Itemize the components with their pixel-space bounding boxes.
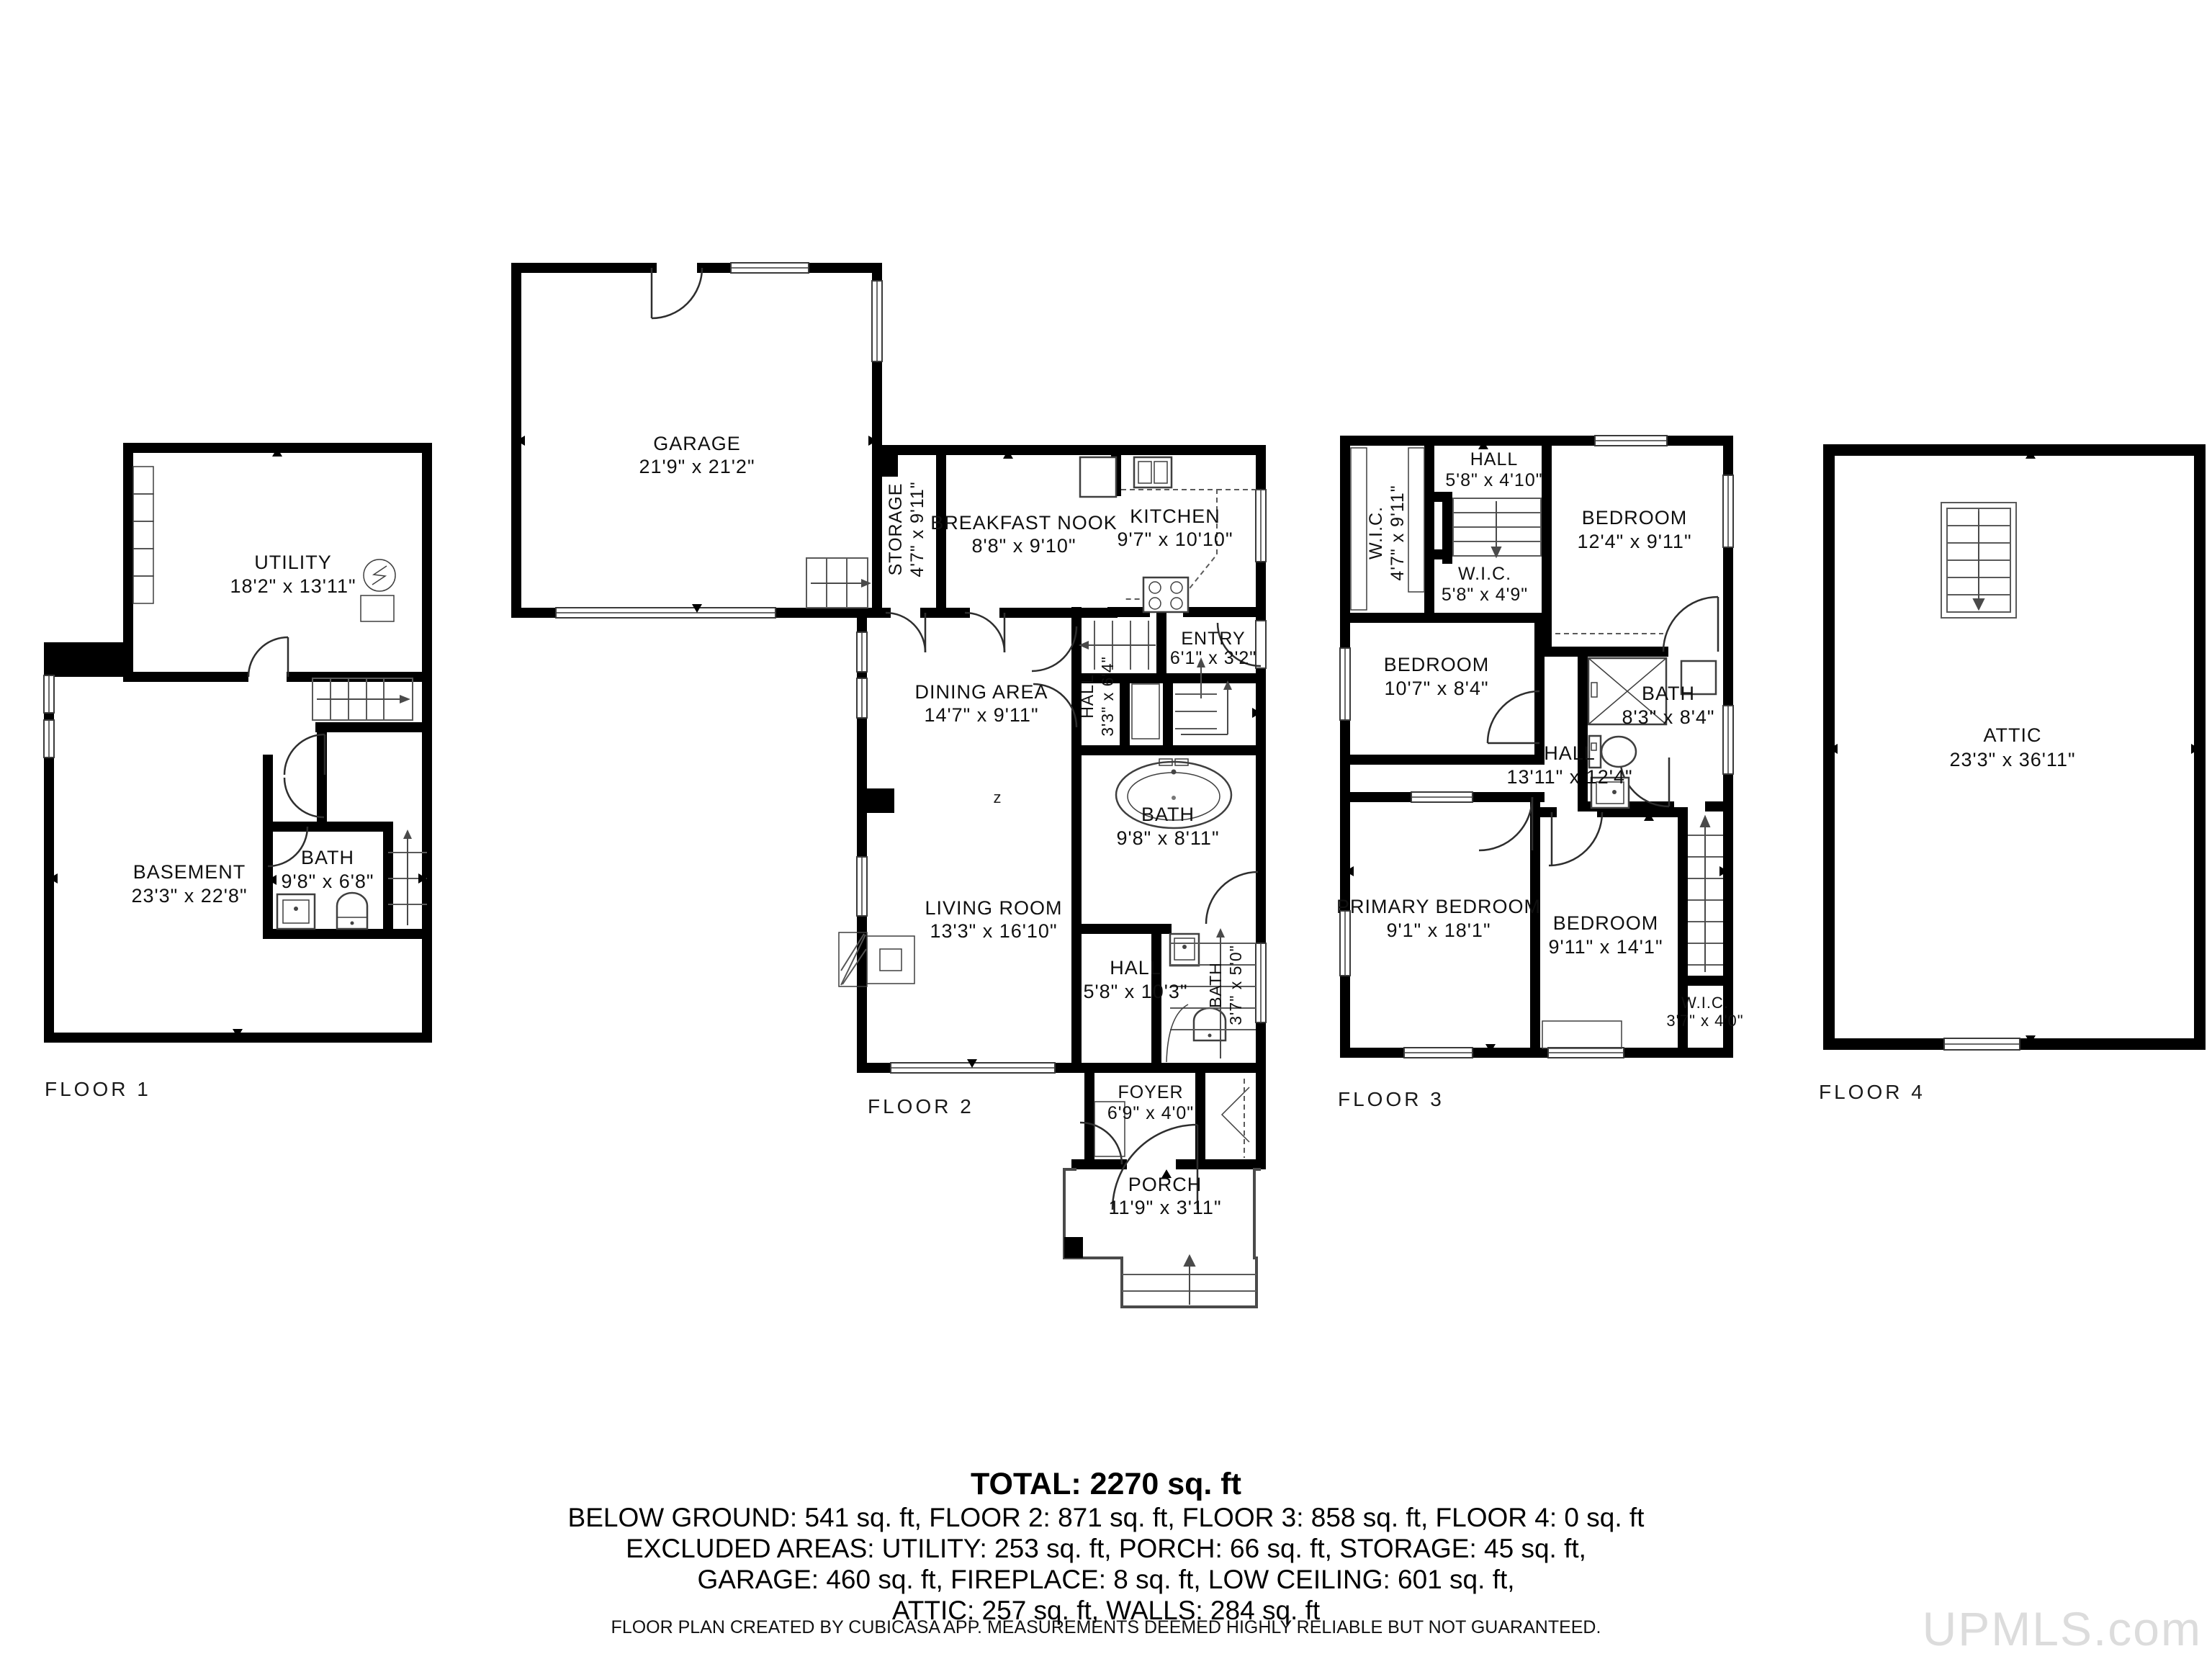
room-label-primary-name: PRIMARY BEDROOM (1336, 896, 1541, 917)
room-label-bedroom-b-dims: 9'11" x 14'1" (1548, 936, 1663, 958)
room-label-utility-dims: 18'2" x 13'11" (230, 575, 356, 597)
excluded-areas-text-2: GARAGE: 460 sq. ft, FIREPLACE: 8 sq. ft,… (0, 1564, 2212, 1595)
room-label-hall-main-dims: 13'11" x 12'4" (1506, 766, 1632, 788)
floor-4-label: FLOOR 4 (1819, 1081, 1925, 1103)
room-label-bedroom-l-name: BEDROOM (1384, 654, 1490, 675)
room-label-entry-dims: 6'1" x 3'2" (1170, 648, 1256, 668)
room-label-basement-name: BASEMENT (133, 861, 246, 883)
room-label-living-name: LIVING ROOM (925, 897, 1062, 919)
room-label-utility-name: UTILITY (254, 552, 332, 573)
floor-2-plan: GARAGE 21'9" x 21'2" STORAGE 4'7" x 9'11… (504, 252, 1296, 1346)
room-label-bath2-name: BATH (1141, 804, 1195, 825)
stove-icon (1143, 577, 1188, 612)
room-label-garage-name: GARAGE (653, 433, 741, 454)
room-label-wic-mid-name: W.I.C. (1458, 564, 1511, 584)
room-label-breakfast-name: BREAKFAST NOOK (930, 512, 1118, 534)
floor-1-plan: UTILITY 18'2" x 13'11" BASEMENT 23'3" x … (29, 425, 461, 1145)
room-label-hall-top-name: HALL (1470, 449, 1519, 469)
dimension-markers (49, 448, 427, 1038)
door-arcs (248, 637, 325, 866)
room-label-wic-small-dims: 3'7" x 4'0" (1666, 1012, 1743, 1030)
entry-stairs-icon (1079, 621, 1156, 670)
room-label-kitchen-dims: 9'7" x 10'10" (1117, 529, 1233, 550)
bath-fixtures (277, 893, 367, 929)
floor-areas-text: BELOW GROUND: 541 sq. ft, FLOOR 2: 871 s… (0, 1502, 2212, 1533)
room-label-bath2-dims: 9'8" x 8'11" (1116, 827, 1219, 849)
stairs-icon (806, 558, 871, 608)
room-label-hall-lower-name: HALL (1110, 957, 1161, 979)
room-label-hall-main-name: HALL (1544, 742, 1596, 764)
total-area-text: TOTAL: 2270 sq. ft (0, 1466, 2212, 1502)
dimension-markers (1829, 450, 2200, 1044)
room-label-hall-upper-dims: 3'3" x 6'4" (1098, 656, 1117, 737)
floorplan-page: UTILITY 18'2" x 13'11" BASEMENT 23'3" x … (0, 0, 2212, 1659)
room-label-garage-dims: 21'9" x 21'2" (639, 456, 755, 477)
fireplace-icon (839, 932, 914, 986)
electrical-panel-icon (361, 559, 395, 621)
floor-3-label: FLOOR 3 (1338, 1088, 1444, 1110)
room-label-bedroom-tr-name: BEDROOM (1582, 507, 1688, 529)
floor-2-label: FLOOR 2 (868, 1095, 974, 1118)
floor-2-walls (516, 268, 1261, 1164)
room-label-foyer-dims: 6'9" x 4'0" (1107, 1103, 1194, 1123)
room-label-bath3-dims: 8'3" x 8'4" (1622, 706, 1714, 728)
floor-1-shelving (133, 467, 153, 603)
excluded-areas-text-1: EXCLUDED AREAS: UTILITY: 253 sq. ft, POR… (0, 1533, 2212, 1564)
toilet-icon (1589, 736, 1636, 768)
area-summary: TOTAL: 2270 sq. ft BELOW GROUND: 541 sq.… (0, 1466, 2212, 1626)
stairs-icon (313, 678, 413, 720)
room-label-hall-lower-dims: 5'8" x 10'3" (1083, 981, 1187, 1002)
room-label-bedroom-l-dims: 10'7" x 8'4" (1384, 678, 1488, 699)
room-label-bath-dims: 9'8" x 6'8" (281, 871, 374, 892)
room-label-bath-small-name: BATH (1206, 962, 1225, 1008)
room-label-porch-dims: 11'9" x 3'11" (1108, 1197, 1221, 1218)
room-label-porch-name: PORCH (1128, 1174, 1202, 1195)
room-label-bath3-name: BATH (1642, 683, 1695, 704)
floor-1-walls (49, 448, 427, 1038)
room-label-bath-small-dims: 3'7" x 5'0" (1226, 945, 1245, 1025)
room-label-bath-name: BATH (301, 847, 354, 868)
stairs-up-icon (1688, 817, 1723, 972)
bath-door-arc (1206, 872, 1258, 924)
room-label-entry-name: ENTRY (1181, 629, 1245, 649)
room-label-attic-dims: 23'3" x 36'11" (1949, 749, 2075, 770)
closet-under-stairs (1132, 680, 1232, 739)
floor-4-plan: ATTIC 23'3" x 36'11" FLOOR 4 (1800, 418, 2212, 1138)
bedroom-shelf (1542, 1021, 1622, 1048)
room-label-basement-dims: 23'3" x 22'8" (131, 885, 247, 907)
garage-door-arc (652, 268, 702, 318)
room-label-wic-small-name: W.I.C. (1681, 994, 1729, 1012)
floor-4-walls (1829, 450, 2200, 1044)
room-label-breakfast-dims: 8'8" x 9'10" (971, 535, 1076, 557)
attic-stairs-icon (1941, 503, 2016, 618)
room-label-kitchen-name: KITCHEN (1130, 505, 1220, 527)
room-label-hall-upper-name: HALL (1078, 674, 1097, 719)
watermark-text: UPMLS.com (1923, 1601, 2202, 1656)
room-label-storage-dims: 4'7" x 9'11" (907, 481, 927, 577)
floor-1-label: FLOOR 1 (45, 1078, 151, 1100)
room-label-wic-left-name: W.I.C. (1366, 506, 1386, 559)
room-label-wic-left-dims: 4'7" x 9'11" (1388, 485, 1408, 580)
room-label-primary-dims: 9'1" x 18'1" (1386, 920, 1491, 941)
room-label-bedroom-b-name: BEDROOM (1553, 912, 1659, 934)
room-label-living-dims: 13'3" x 16'10" (930, 920, 1057, 942)
room-label-storage-name: STORAGE (886, 483, 906, 576)
stairs-down-icon (1453, 498, 1541, 557)
room-label-wic-mid-dims: 5'8" x 4'9" (1442, 585, 1528, 605)
storage-door (886, 613, 1004, 652)
floor-4-windows (1944, 1038, 2020, 1050)
disclaimer-text: FLOOR PLAN CREATED BY CUBICASA APP. MEAS… (0, 1617, 2212, 1638)
room-label-dining-dims: 14'7" x 9'11" (924, 704, 1038, 726)
floor-3-plan: W.I.C. 4'7" x 9'11" HALL 5'8" x 4'10" W.… (1318, 418, 1764, 1138)
room-label-bedroom-tr-dims: 12'4" x 9'11" (1577, 531, 1691, 552)
room-label-foyer-name: FOYER (1118, 1082, 1183, 1102)
room-label-dining-name: DINING AREA (914, 681, 1048, 703)
ceiling-marker: z (994, 788, 1002, 806)
room-label-attic-name: ATTIC (1984, 724, 2042, 746)
room-label-hall-top-dims: 5'8" x 4'10" (1445, 470, 1542, 490)
